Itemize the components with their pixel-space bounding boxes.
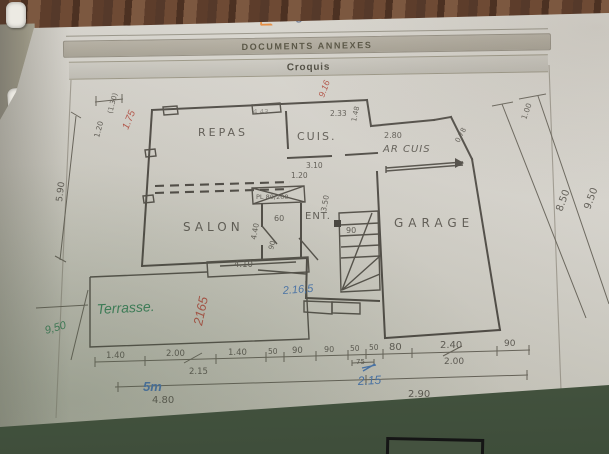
dim-stairs-90: 90 xyxy=(346,226,356,235)
dim-cuis-310: 3.10 xyxy=(306,161,323,170)
dim-top-443: 4.43 xyxy=(253,108,269,116)
garage-arrow xyxy=(386,158,464,173)
hand-blue-5m: 5m xyxy=(143,379,162,394)
dim-top-233: 2.33 xyxy=(330,109,347,118)
dim-arcuis-280: 2.80 xyxy=(384,131,402,140)
report-page: iDiag.com DOCUMENTS ANNEXES Croquis xyxy=(0,0,609,454)
staircase xyxy=(334,211,380,292)
dim-diag-078: 0.78 xyxy=(454,126,468,144)
chain-sub-200: 2.00 xyxy=(444,357,464,367)
dim-right-850: 8.50 xyxy=(554,188,572,213)
hand-blue-215: 2.15 xyxy=(356,373,381,388)
chain-200: 2.00 xyxy=(166,349,185,359)
chain-80: 80 xyxy=(389,342,402,353)
chain-50a: 50 xyxy=(268,347,278,356)
documents-annexes-bar: DOCUMENTS ANNEXES xyxy=(63,33,551,58)
room-label-repas: REPAS xyxy=(198,126,248,139)
dim-bottom-480: 4.80 xyxy=(152,395,174,406)
binding-ring xyxy=(6,2,26,28)
dim-ent-120: 1.20 xyxy=(291,171,308,180)
chain-240: 2.40 xyxy=(440,340,462,351)
stair-post xyxy=(334,220,341,227)
chain-140b: 1.40 xyxy=(228,348,247,358)
room-label-garage: GARAGE xyxy=(394,216,474,230)
dim-vest-440: 4.40 xyxy=(249,222,261,240)
hand-red-175: 1.75 xyxy=(121,109,139,132)
chain-90a: 90 xyxy=(292,346,303,356)
chain-sub-215: 2.15 xyxy=(189,367,208,377)
dim-salon-410: 4.10 xyxy=(234,260,253,270)
room-label-cuis: CUIS. xyxy=(297,130,336,143)
documents-annexes-title: DOCUMENTS ANNEXES xyxy=(241,39,372,51)
dim-vest-60: 60 xyxy=(274,214,284,223)
hand-red-2165: 2165 xyxy=(190,294,211,327)
chain-sub-75: 75 xyxy=(356,358,365,366)
dim-left-130: (1.30) xyxy=(106,92,119,115)
chain-140a: 1.40 xyxy=(106,351,125,361)
dark-object-edge xyxy=(386,437,485,454)
room-label-ar-cuis: AR CUIS xyxy=(382,144,431,155)
hand-green-950: 9,50 xyxy=(44,319,69,337)
chain-90b: 90 xyxy=(324,345,334,354)
chain-90c: 90 xyxy=(504,339,516,349)
dim-right-100: 1.00 xyxy=(519,102,533,121)
photo-of-report-page: iDiag.com DOCUMENTS ANNEXES Croquis xyxy=(0,0,609,454)
room-label-terrasse: Terrasse. xyxy=(96,298,155,317)
chain-50c: 50 xyxy=(369,343,379,352)
terrace xyxy=(36,257,309,360)
hand-red-916: 9.16 xyxy=(316,79,331,99)
interior-walls xyxy=(155,112,377,260)
dim-right-148: 1.48 xyxy=(350,105,361,122)
dim-right-950: 9.50 xyxy=(582,186,600,211)
dim-stairs-350: 3.50 xyxy=(319,194,331,212)
hand-blue-2165: 2.16,5 xyxy=(281,283,314,297)
room-label-salon: SALON xyxy=(183,220,244,234)
dim-left-120: 1.20 xyxy=(92,120,105,139)
page-frame-left xyxy=(56,80,71,418)
dim-closet-pl80200: PL 80/200 xyxy=(256,193,288,201)
chain-50b: 50 xyxy=(350,344,360,353)
entry-steps xyxy=(304,301,360,314)
